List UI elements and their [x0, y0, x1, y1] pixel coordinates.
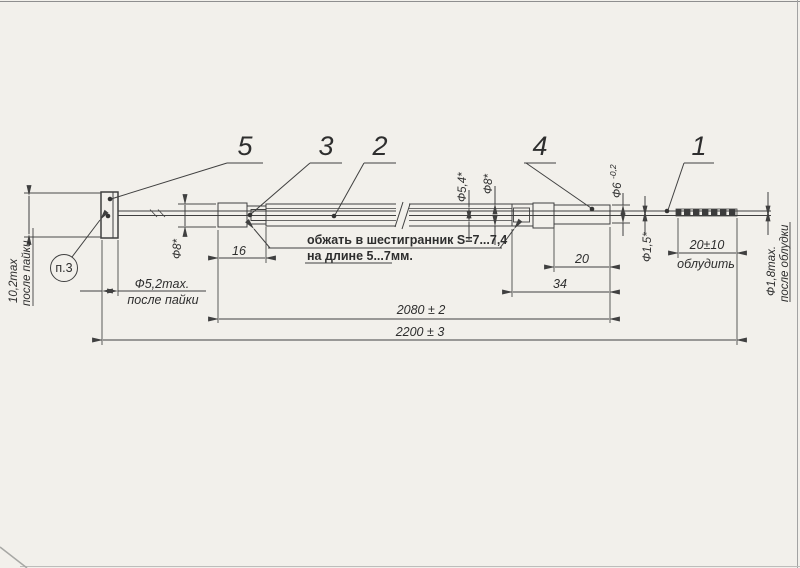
scanned-drawing-page: 5 3 2 4 1 п.3 обжать в шестигранник S=7.…	[0, 0, 800, 568]
dim-tin-length: 20±10	[689, 238, 725, 252]
dim-right-cyl-length: 20	[574, 252, 589, 266]
right-fitting-cylinder	[554, 205, 610, 224]
dim-solder-height-value: 10,2max	[8, 258, 20, 303]
tinned-section	[676, 209, 737, 216]
dim-length-2080: 2080 ± 2	[396, 303, 446, 317]
part-label-1: 1	[691, 131, 706, 161]
dim-solder-height-qualifier: после пайки	[21, 240, 33, 306]
part-label-2: 2	[371, 131, 387, 161]
dim-right-fitting-length: 34	[553, 277, 567, 291]
dim-left-fitting-dia: Ф8*	[172, 238, 184, 259]
note-line1: обжать в шестигранник S=7...7,4	[307, 233, 507, 247]
part-label-5: 5	[237, 131, 253, 161]
dim-tube-outer-dia: Ф8*	[483, 173, 495, 194]
dim-right-fitting-dia-tol: -0,2	[608, 164, 618, 179]
cable-assembly-drawing: 5 3 2 4 1 п.3 обжать в шестигранник S=7.…	[0, 0, 800, 568]
dim-length-2200: 2200 ± 3	[395, 325, 445, 339]
scan-edges	[0, 0, 800, 568]
dim-tinned-dia-value: Ф1,8max.	[766, 246, 778, 296]
part-label-4: 4	[532, 131, 547, 161]
tube-break-symbol	[395, 200, 410, 229]
dim-solder-dia-value: Ф5,2max.	[135, 277, 189, 291]
part-outlines	[101, 192, 771, 238]
part-label-3: 3	[318, 131, 333, 161]
dim-tinned-dia-qualifier: после облудки	[779, 224, 791, 302]
dim-wire-dia: Ф1,5*	[642, 232, 654, 262]
right-crimp-inner	[514, 208, 530, 222]
dim-left-fitting-length: 16	[232, 244, 246, 258]
dim-right-fitting-dia: Ф6	[612, 182, 624, 198]
left-fitting-body	[218, 203, 247, 227]
annotations: 5 3 2 4 1 п.3 обжать в шестигранник S=7.…	[8, 131, 791, 339]
dim-solder-dia-qualifier: после пайки	[127, 293, 198, 307]
tube	[266, 204, 512, 226]
dim-tin-operation: облудить	[677, 257, 735, 271]
callout-label: п.3	[55, 261, 72, 275]
dim-tube-inner-dia: Ф5,4*	[457, 172, 469, 202]
note-line2: на длине 5...7мм.	[307, 249, 413, 263]
